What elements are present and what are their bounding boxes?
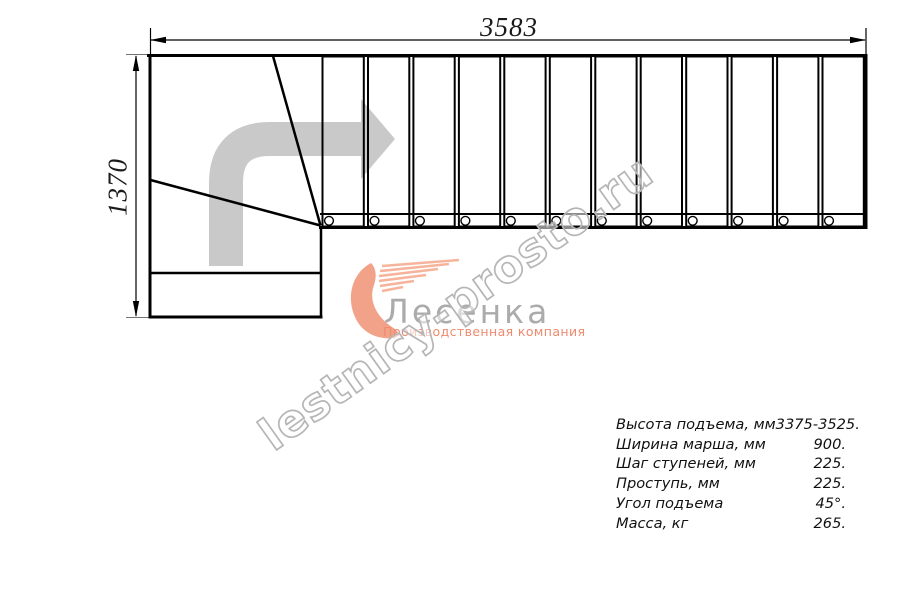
tread-mount-circle [461,216,470,225]
tread-cell [732,57,773,227]
stair-drawing-page: Лесенка Производственная компания 3583 1… [0,0,900,600]
tread-cell [413,57,454,227]
spec-row: Шаг ступеней, мм225. [616,454,846,474]
arrowhead-left-icon [150,37,166,43]
specs-table: Высота подъема, мм3375-3525.Ширина марша… [616,415,846,533]
spec-row: Ширина марша, мм900. [616,435,846,455]
tread-cell [823,57,864,227]
spec-row: Масса, кг265. [616,514,846,534]
spec-value: 225. [814,474,847,494]
tread-mount-circle [643,216,652,225]
spec-value: 3375-3525. [776,415,860,435]
direction-arrow [226,99,395,266]
arrowhead-right-icon [850,37,866,43]
spec-label: Масса, кг [616,514,688,534]
arrowhead-down-icon [133,301,139,317]
dimension-value-top: 3583 [471,12,547,43]
arrowhead-up-icon [133,55,139,71]
tread-mount-circle [370,216,379,225]
spec-label: Проступь, мм [616,474,720,494]
spec-value: 900. [814,435,847,455]
spec-label: Высота подъема, мм [616,415,776,435]
tread-cell [459,57,500,227]
spec-label: Угол подъема [616,494,723,514]
spec-row: Высота подъема, мм3375-3525. [616,415,846,435]
spec-row: Угол подъема45°. [616,494,846,514]
spec-label: Ширина марша, мм [616,435,766,455]
tread-mount-circle [825,216,834,225]
tread-cell [686,57,727,227]
dimension-value-left: 1370 [103,158,134,216]
tread-cell [777,57,818,227]
tread-cell [641,57,682,227]
tread-cell [504,57,545,227]
tread-mount-circle [734,216,743,225]
tread-mount-circle [779,216,788,225]
direction-arrow-shaft [226,139,361,266]
spec-value: 265. [814,514,847,534]
direction-arrow-head [361,99,395,179]
spec-row: Проступь, мм225. [616,474,846,494]
spec-label: Шаг ступеней, мм [616,454,756,474]
spec-value: 45°. [815,494,846,514]
spec-value: 225. [814,454,847,474]
tread-mount-circle [688,216,697,225]
tread-mount-circle [506,216,515,225]
tread-mount-circle [416,216,425,225]
tread-mount-circle [325,216,334,225]
